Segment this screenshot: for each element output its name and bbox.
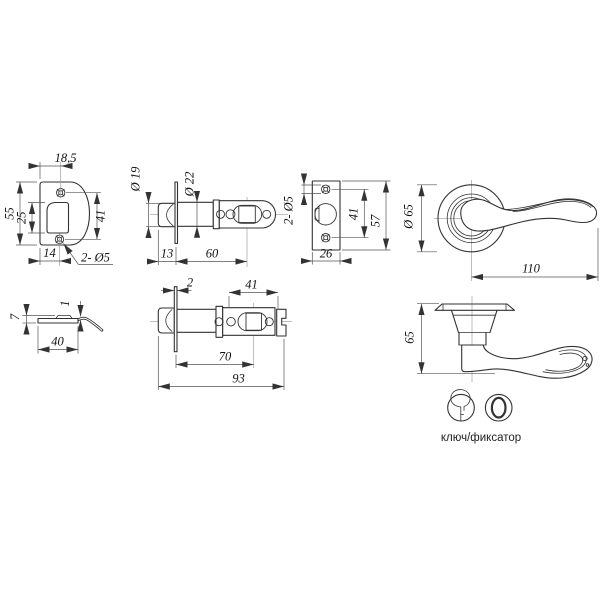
dim-label: 110 bbox=[522, 262, 541, 276]
dim-label: Ø 19 bbox=[129, 166, 143, 192]
dim-label: 41 bbox=[245, 278, 258, 292]
technical-drawing-sheet: 18,5 55 25 41 14 2- Ø5 bbox=[0, 0, 600, 600]
dim-label: Ø 22 bbox=[183, 172, 197, 198]
legend-caption: ключ/фиксатор bbox=[441, 432, 521, 444]
dim-label: 41 bbox=[347, 208, 361, 221]
faceplate-front-view: 2- Ø5 41 57 26 bbox=[282, 177, 391, 265]
dim-label: 40 bbox=[51, 335, 64, 349]
dim-label: 7 bbox=[8, 313, 22, 320]
latch-bolt-head bbox=[158, 203, 176, 226]
dim-label: 57 bbox=[369, 214, 383, 227]
dim-label: 1 bbox=[58, 300, 72, 306]
dim-label: 14 bbox=[43, 246, 56, 260]
rose-cap bbox=[435, 304, 515, 310]
lever bbox=[461, 199, 597, 231]
dim-label: 41 bbox=[94, 210, 108, 223]
dim-label: 2 bbox=[187, 276, 193, 290]
latch-bolt-head bbox=[158, 308, 174, 333]
latch-body bbox=[219, 201, 275, 228]
dim-label: 93 bbox=[232, 372, 245, 386]
dim-label: 60 bbox=[206, 247, 219, 261]
dim-label: 65 bbox=[403, 331, 417, 344]
dim-label: 18,5 bbox=[55, 151, 77, 165]
dim-label: Ø 65 bbox=[402, 204, 416, 230]
latch-tube bbox=[178, 202, 214, 226]
handle-front-view: Ø 65 110 bbox=[402, 180, 599, 281]
holes-callout: 2- Ø5 bbox=[282, 196, 296, 225]
dim-label: 70 bbox=[219, 350, 232, 364]
latch-backset-60-view: Ø 19 Ø 22 13 60 bbox=[129, 166, 289, 267]
door-handle-dimension-drawing: 18,5 55 25 41 14 2- Ø5 bbox=[0, 0, 600, 600]
holes-callout: 2- Ø5 bbox=[81, 251, 110, 265]
dim-label: 25 bbox=[15, 212, 29, 225]
legend: ключ/фиксатор bbox=[441, 390, 521, 444]
handle-side-view: 65 bbox=[403, 296, 593, 382]
dim-label: 13 bbox=[161, 247, 174, 261]
latch-tube bbox=[177, 309, 216, 332]
latch-backset-70-view: 2 41 70 93 bbox=[150, 276, 292, 391]
spindle-clip bbox=[277, 309, 286, 336]
strike-plate-front-view: 18,5 55 25 41 14 2- Ø5 bbox=[3, 151, 114, 266]
strike-plate-side-view: 7 1 40 bbox=[8, 300, 103, 353]
dim-label: 26 bbox=[320, 247, 333, 261]
